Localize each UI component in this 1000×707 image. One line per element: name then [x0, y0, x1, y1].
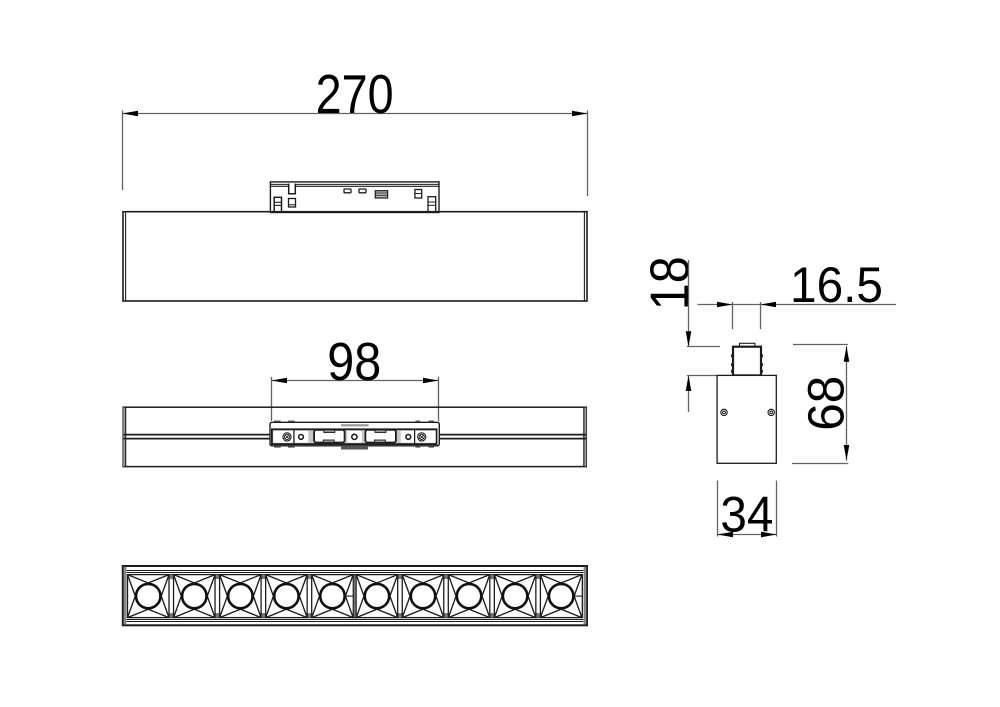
svg-text:98: 98	[327, 332, 381, 392]
svg-text:270: 270	[316, 63, 394, 125]
svg-text:18: 18	[639, 256, 701, 310]
